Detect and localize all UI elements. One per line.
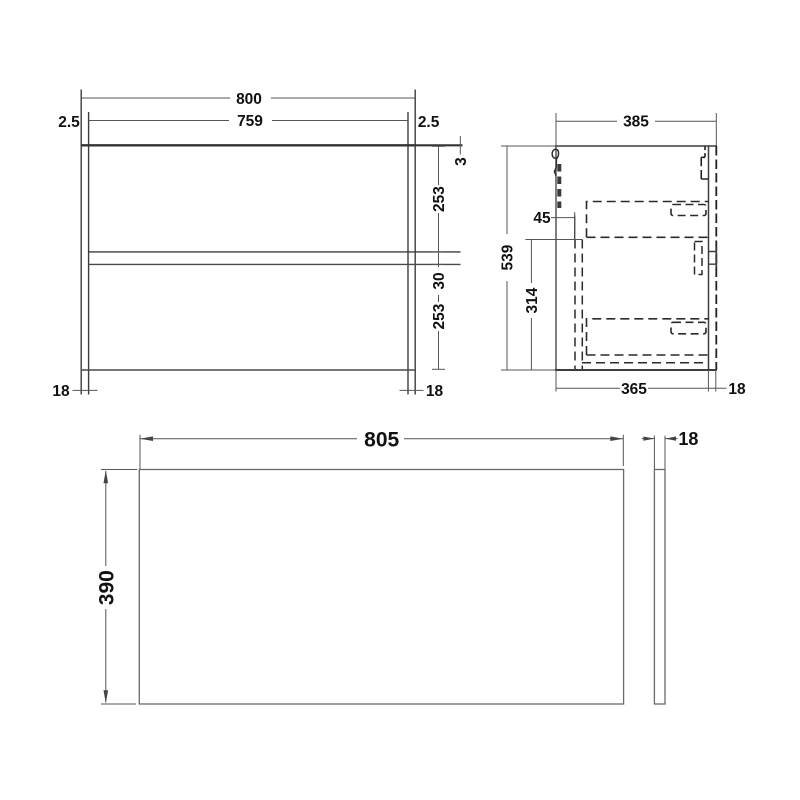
svg-text:18: 18	[678, 429, 698, 449]
svg-text:253: 253	[431, 303, 448, 329]
svg-text:385: 385	[623, 114, 649, 131]
svg-text:759: 759	[237, 113, 263, 130]
svg-text:2.5: 2.5	[418, 114, 440, 131]
svg-text:30: 30	[431, 272, 448, 289]
svg-text:365: 365	[621, 381, 647, 398]
svg-text:539: 539	[500, 244, 517, 270]
svg-text:18: 18	[426, 383, 444, 400]
svg-text:253: 253	[431, 186, 448, 212]
svg-text:314: 314	[524, 287, 541, 313]
svg-text:18: 18	[728, 381, 746, 398]
svg-text:18: 18	[52, 383, 70, 400]
svg-text:800: 800	[236, 91, 262, 108]
svg-text:3: 3	[453, 157, 470, 166]
svg-text:805: 805	[364, 428, 399, 451]
svg-text:45: 45	[533, 210, 551, 227]
svg-text:2.5: 2.5	[58, 114, 80, 131]
svg-text:390: 390	[95, 570, 118, 605]
